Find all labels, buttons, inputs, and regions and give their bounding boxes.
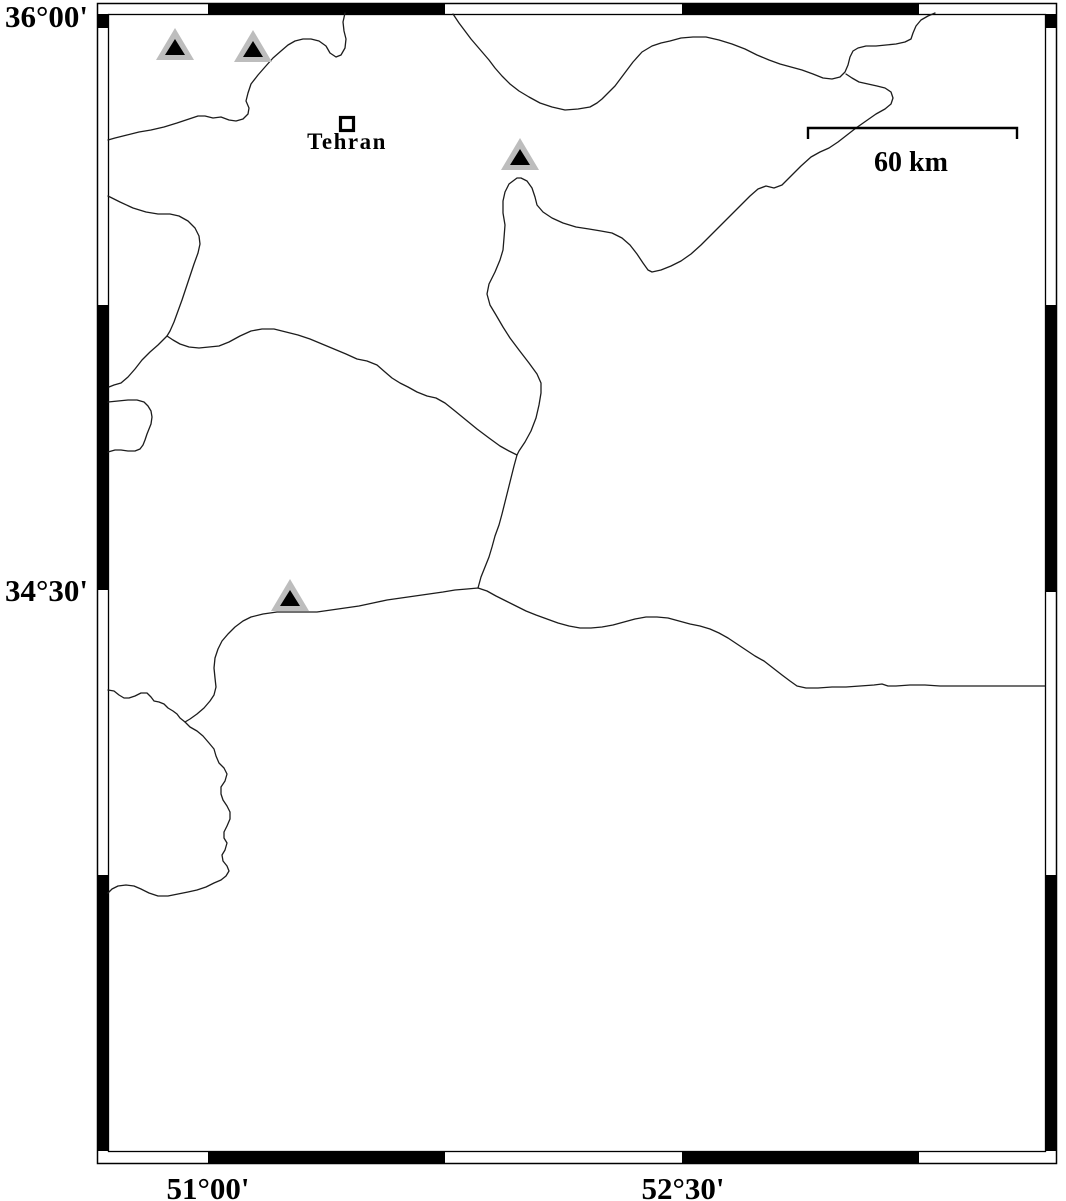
frame-segment-bottom	[208, 1151, 445, 1163]
map-background	[0, 0, 1066, 1201]
frame-segment-bottom	[682, 1151, 919, 1163]
map-figure: 36°00' 34°30' 51°00' 52°30' Tehran 60 km	[0, 0, 1066, 1201]
frame-segment-right	[1045, 14, 1056, 28]
axis-label-lat-36-00: 36°00'	[5, 0, 88, 34]
city-label: Tehran	[307, 129, 387, 154]
frame-segment-left	[97, 14, 108, 28]
frame-segment-right	[1045, 305, 1056, 592]
frame-segment-right	[1045, 875, 1056, 1151]
scale-bar-label: 60 km	[874, 147, 948, 178]
frame-segment-top	[682, 3, 919, 14]
frame-segment-left	[97, 875, 108, 1151]
frame-segment-top	[208, 3, 445, 14]
map-frame	[0, 0, 1066, 1201]
axis-label-lon-51-00: 51°00'	[166, 1171, 249, 1201]
map-canvas: 36°00' 34°30' 51°00' 52°30' Tehran 60 km	[0, 0, 1066, 1201]
axis-label-lon-52-30: 52°30'	[641, 1171, 724, 1201]
frame-segment-left	[97, 305, 108, 590]
axis-label-lat-34-30: 34°30'	[5, 573, 88, 608]
